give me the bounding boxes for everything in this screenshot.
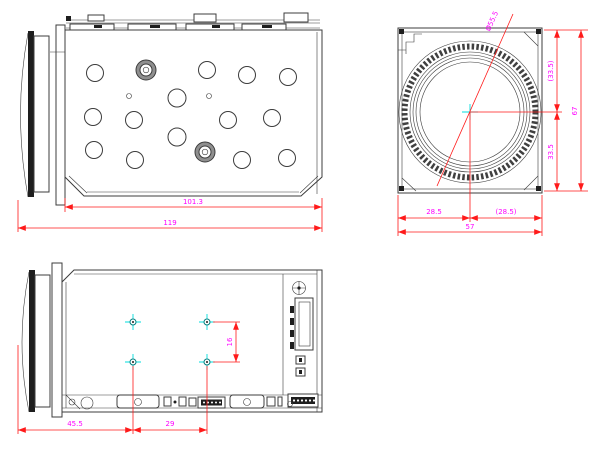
lens-ring-dark xyxy=(28,31,34,197)
dim-half-width: 28.5 xyxy=(426,208,442,216)
dim-hole-pitch-y: 16 xyxy=(226,337,234,346)
dim-body-length: 101.3 xyxy=(183,198,203,206)
top-pcb-profile xyxy=(66,13,320,30)
dim-width: 57 xyxy=(466,223,475,231)
dim-half-height: 33.5 xyxy=(547,144,555,160)
dim-half-width-ref: (28.5) xyxy=(495,208,516,216)
lens-flange-bottom xyxy=(52,263,62,417)
lens-barrel-bottom xyxy=(35,275,50,407)
body-outline xyxy=(65,30,322,196)
lens-arc-bottom xyxy=(22,272,29,412)
engineering-drawing-canvas: 101.3 119 Ø55.5 xyxy=(0,0,600,451)
lens-barrel xyxy=(34,36,49,192)
lens-ring-dark-bottom xyxy=(29,270,35,412)
dim-hole-pitch-x: 29 xyxy=(166,420,175,428)
camera-module-drawing: 101.3 119 Ø55.5 xyxy=(0,0,600,451)
front-view-right-dimensions: (33.5) 33.5 67 xyxy=(544,30,588,191)
bottom-view: 45.5 29 16 xyxy=(18,263,322,434)
screw-boss-1 xyxy=(136,60,156,80)
dim-half-height-ref: (33.5) xyxy=(547,60,555,81)
dim-overall-length: 119 xyxy=(163,219,176,227)
front-view: Ø55.5 (33.5) 33.5 67 28.5 (28.5) 57 xyxy=(398,10,588,236)
screw-boss-2 xyxy=(195,142,215,162)
dim-front-to-hole: 45.5 xyxy=(67,420,83,428)
lens-arc xyxy=(21,33,29,197)
side-view: 101.3 119 xyxy=(18,13,322,232)
dim-height: 67 xyxy=(571,107,579,116)
